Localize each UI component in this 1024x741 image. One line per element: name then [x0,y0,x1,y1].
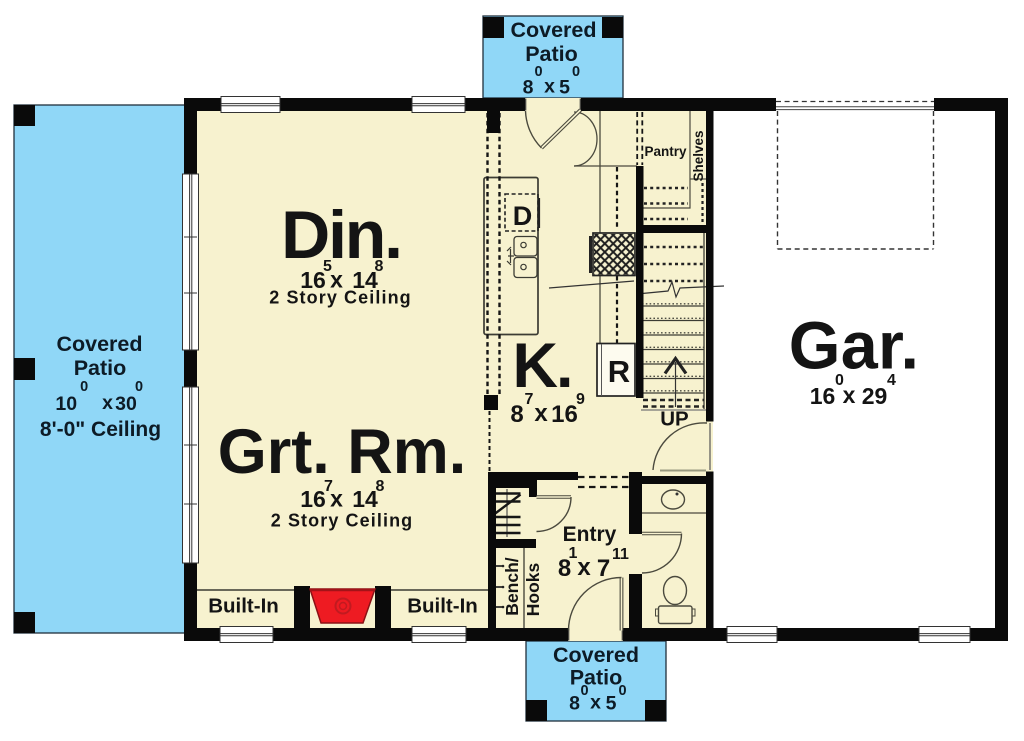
svg-text:Built-In: Built-In [208,595,279,618]
svg-text:30: 30 [115,393,137,415]
svg-text:Shelves: Shelves [691,130,706,181]
svg-text:Covered: Covered [510,18,596,42]
svg-text:7: 7 [597,555,610,582]
svg-text:8: 8 [523,77,534,99]
svg-text:x: x [577,554,591,581]
svg-text:Pantry: Pantry [644,144,687,159]
svg-text:D: D [513,201,533,231]
svg-text:0: 0 [618,683,626,699]
svg-text:x: x [843,382,856,408]
svg-text:Patio: Patio [570,666,623,690]
svg-text:16: 16 [810,383,836,409]
svg-text:Covered: Covered [553,643,639,667]
svg-text:11: 11 [612,546,629,563]
svg-text:K.: K. [513,331,572,401]
svg-text:2 Story Ceiling: 2 Story Ceiling [271,511,414,531]
svg-text:Patio: Patio [74,356,127,380]
svg-text:0: 0 [80,379,88,395]
svg-text:x: x [102,392,113,414]
svg-text:Gar.: Gar. [789,310,920,384]
svg-text:1: 1 [569,545,578,562]
svg-text:14: 14 [352,486,378,512]
svg-text:Hooks: Hooks [523,562,543,616]
svg-text:R: R [608,354,630,389]
svg-text:Covered: Covered [56,332,142,356]
svg-text:8: 8 [569,693,580,715]
svg-text:9: 9 [576,391,585,408]
svg-text:Built-In: Built-In [407,595,478,618]
svg-text:4: 4 [887,372,896,389]
svg-text:0: 0 [135,379,143,395]
svg-text:7: 7 [525,391,534,408]
svg-text:Entry: Entry [563,523,617,546]
svg-text:x: x [590,692,601,714]
svg-text:x: x [534,400,548,427]
svg-text:0: 0 [580,683,588,699]
svg-text:8: 8 [376,478,385,495]
svg-text:8: 8 [510,401,523,428]
svg-text:5: 5 [606,693,617,715]
svg-text:16: 16 [551,401,578,428]
svg-text:0: 0 [534,64,542,80]
svg-text:16: 16 [300,486,326,512]
svg-text:0: 0 [572,64,580,80]
svg-text:2 Story Ceiling: 2 Story Ceiling [269,288,412,308]
svg-text:8: 8 [375,258,384,275]
svg-text:8'-0" Ceiling: 8'-0" Ceiling [40,418,161,441]
svg-text:5: 5 [559,77,570,99]
svg-text:Bench/: Bench/ [502,557,522,615]
svg-text:10: 10 [55,393,77,415]
svg-text:x: x [330,486,343,512]
svg-text:Grt. Rm.: Grt. Rm. [218,417,467,487]
svg-text:Patio: Patio [525,42,578,66]
svg-text:29: 29 [862,383,888,409]
svg-text:x: x [544,76,555,98]
